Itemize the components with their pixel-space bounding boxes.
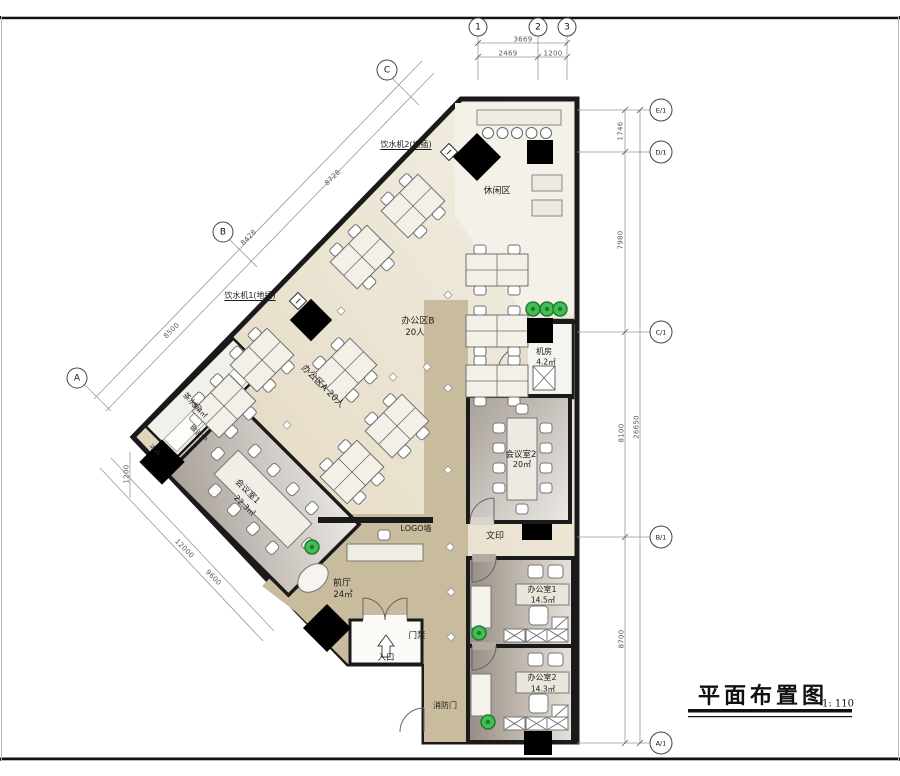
- grid-bubble-3-label: 3: [564, 22, 570, 32]
- grid-bubble-e1-label: E/1: [656, 106, 666, 114]
- reception-desk: [347, 544, 423, 561]
- grid-bubble-a1-label: A/1: [656, 739, 667, 747]
- column-icon: [527, 318, 553, 343]
- grid-bubble-a-label: A: [74, 373, 80, 383]
- label-server-room-area: 4.2㎡: [536, 358, 555, 366]
- grid-bubble-1-label: 1: [475, 22, 481, 32]
- scale-label: 1: 110: [822, 699, 854, 710]
- label-fire-door: 消防门: [433, 702, 457, 710]
- grid-bubble-d1: D/1: [650, 141, 673, 164]
- grid-bubble-c1-label: C/1: [656, 328, 667, 336]
- server-equipment: [533, 366, 555, 390]
- grid-bubble-a: A: [67, 368, 88, 389]
- grid-bubble-b-label: B: [220, 227, 226, 237]
- dim-right-total: 26650: [634, 415, 641, 439]
- dim-top-seg1: 2469: [498, 51, 517, 58]
- column-icon: [524, 731, 552, 755]
- grid-bubble-c: C: [377, 60, 398, 81]
- grid-bubble-a1: A/1: [650, 732, 673, 755]
- label-meeting2-area: 20㎡: [513, 461, 531, 469]
- grid-bubble-c-label: C: [384, 65, 390, 75]
- column-icon: [527, 140, 553, 164]
- dim-right-seg2: 7980: [618, 230, 625, 249]
- plant-icon: [526, 302, 540, 316]
- floor-plan-drawing: [0, 0, 900, 776]
- plant-icon: [553, 302, 567, 316]
- floor-plan-sheet: 1 2 3 E/1 D/1 C/1 B/1 A/1 C B A 3669 246…: [0, 0, 900, 776]
- grid-bubble-b1-label: B/1: [656, 533, 667, 541]
- dim-right-seg1: 1746: [618, 121, 625, 140]
- fire-door-leaf: [400, 708, 424, 732]
- bar-counter: [477, 110, 561, 125]
- label-office-b-name: 办公区B: [401, 318, 434, 327]
- label-office-b-capacity: 20人: [405, 329, 424, 338]
- grid-bubble-b: B: [213, 222, 234, 243]
- label-office2-name: 办公室2: [527, 674, 556, 682]
- label-office1-name: 办公室1: [527, 586, 556, 594]
- grid-bubble-3: 3: [558, 18, 577, 37]
- dim-top-seg2: 1200: [543, 51, 562, 58]
- column-icon: [522, 524, 552, 540]
- label-print-area: 文印: [486, 533, 504, 542]
- plant-icon: [472, 626, 486, 640]
- grid-bubble-b1: B/1: [650, 526, 673, 549]
- label-entrance: 入口: [377, 654, 394, 663]
- label-water-dispenser-2: 饮水机2(地插): [380, 141, 431, 149]
- title-underline: [688, 709, 852, 717]
- label-water-dispenser-1: 饮水机1(地插): [224, 292, 275, 300]
- label-server-room-name: 机房: [536, 348, 552, 356]
- grid-bubble-1: 1: [469, 18, 488, 37]
- grid-bubble-e1: E/1: [650, 99, 673, 122]
- label-office1-area: 14.5㎡: [531, 596, 555, 604]
- label-access-door: 门禁: [408, 632, 425, 641]
- grid-bubble-2-label: 2: [535, 22, 541, 32]
- label-lobby-name: 前厅: [333, 580, 351, 589]
- dim-top-total: 3669: [513, 37, 532, 44]
- dim-left-seg1: 1200: [124, 464, 131, 483]
- page-title: 平面布置图: [698, 678, 828, 710]
- grid-bubble-c1: C/1: [650, 321, 673, 344]
- plant-icon: [305, 540, 319, 554]
- grid-bubble-2: 2: [529, 18, 548, 37]
- dim-right-seg4: 8700: [619, 629, 626, 648]
- label-lobby-area: 24㎡: [333, 591, 352, 600]
- grid-bubble-d1-label: D/1: [655, 148, 666, 156]
- plant-icon: [540, 302, 554, 316]
- label-logo-wall: LOGO墙: [401, 525, 432, 533]
- label-meeting2-name: 会议室2: [506, 451, 537, 460]
- label-leisure-area: 休闲区: [483, 188, 510, 197]
- plant-icon: [481, 715, 495, 729]
- dim-right-seg3: 8100: [619, 423, 626, 442]
- label-office2-area: 14.3㎡: [531, 685, 555, 693]
